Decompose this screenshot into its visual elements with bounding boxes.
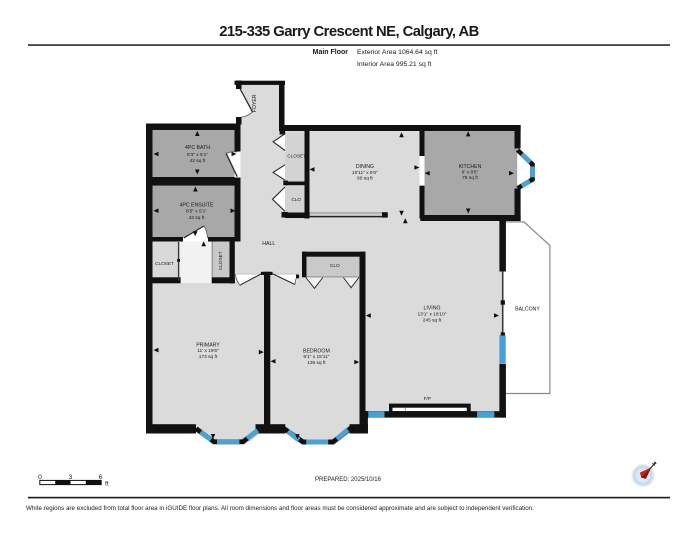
svg-text:CLO: CLO [330, 263, 340, 269]
svg-text:CLO: CLO [291, 197, 301, 202]
svg-text:BEDROOM: BEDROOM [303, 348, 330, 354]
svg-text:9' x 8'5": 9' x 8'5" [462, 170, 479, 176]
svg-text:136 sq ft: 136 sq ft [307, 360, 326, 366]
svg-text:BALCONY: BALCONY [515, 307, 540, 313]
svg-text:8'3" x 5'1": 8'3" x 5'1" [187, 152, 208, 158]
svg-text:11' x 19'6": 11' x 19'6" [197, 348, 219, 354]
svg-text:F/P: F/P [424, 396, 431, 402]
svg-text:215-335 Garry Crescent NE, Cal: 215-335 Garry Crescent NE, Calgary, AB [219, 24, 479, 40]
svg-text:90 sq ft: 90 sq ft [357, 175, 373, 181]
svg-text:4PC ENSUITE: 4PC ENSUITE [179, 202, 214, 208]
svg-text:76 sq ft: 76 sq ft [462, 175, 478, 181]
svg-text:4PC BATH: 4PC BATH [185, 145, 210, 151]
svg-text:13'1" x 18'10": 13'1" x 18'10" [418, 312, 447, 318]
svg-text:245 sq ft: 245 sq ft [423, 317, 442, 323]
svg-text:CLOSET: CLOSET [155, 261, 174, 266]
svg-text:PRIMARY: PRIMARY [196, 342, 220, 348]
svg-text:43 sq ft: 43 sq ft [189, 215, 205, 221]
svg-text:CLOSET: CLOSET [218, 251, 223, 270]
svg-text:DINING: DINING [356, 164, 374, 170]
svg-text:9'1" x 15'11": 9'1" x 15'11" [303, 354, 329, 360]
svg-text:White regions are excluded fro: White regions are excluded from total fl… [26, 505, 534, 512]
svg-text:42 sq ft: 42 sq ft [190, 158, 206, 164]
svg-text:Main Floor: Main Floor [313, 49, 349, 56]
svg-text:PREPARED: 2025/10/16: PREPARED: 2025/10/16 [315, 477, 382, 483]
svg-text:Interior Area 995.21 sq ft: Interior Area 995.21 sq ft [357, 61, 432, 68]
svg-text:FOYER: FOYER [252, 94, 258, 112]
svg-text:KITCHEN: KITCHEN [459, 164, 482, 170]
svg-text:CLOSET: CLOSET [287, 154, 306, 159]
svg-text:HALL: HALL [262, 241, 275, 247]
svg-text:LIVING: LIVING [423, 306, 440, 312]
svg-text:173 sq ft: 173 sq ft [199, 354, 218, 360]
svg-text:10'11" x 8'0": 10'11" x 8'0" [352, 170, 378, 176]
svg-text:8'5" x 5'1": 8'5" x 5'1" [186, 209, 207, 215]
svg-text:ft: ft [105, 481, 109, 488]
svg-text:Exterior Area 1064.64 sq ft: Exterior Area 1064.64 sq ft [357, 49, 438, 56]
